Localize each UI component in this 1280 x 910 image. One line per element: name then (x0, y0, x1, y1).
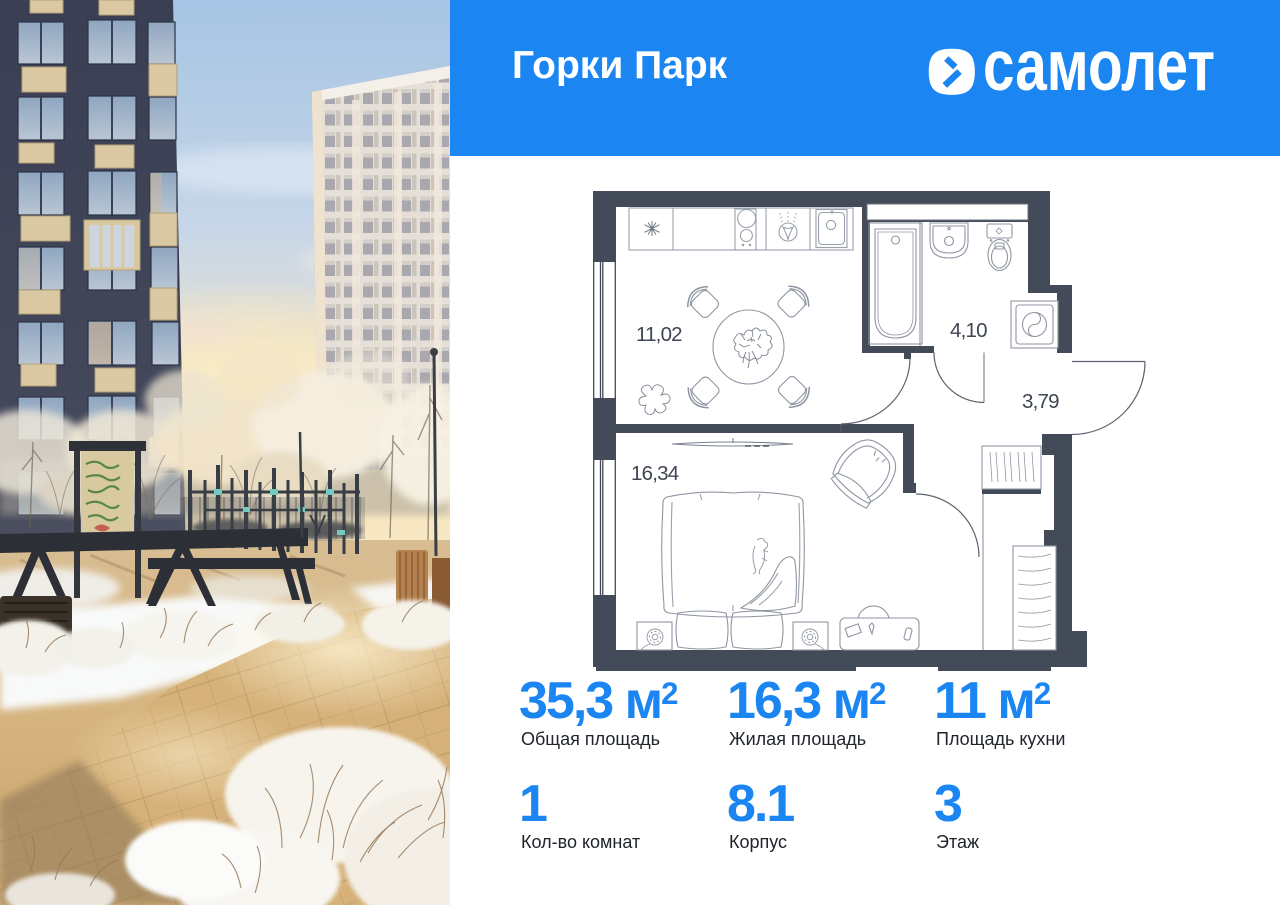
svg-text:3,79: 3,79 (1022, 390, 1059, 413)
svg-text:4,10: 4,10 (950, 319, 987, 342)
svg-text:11,02: 11,02 (636, 323, 682, 346)
svg-text:16,34: 16,34 (631, 462, 679, 485)
